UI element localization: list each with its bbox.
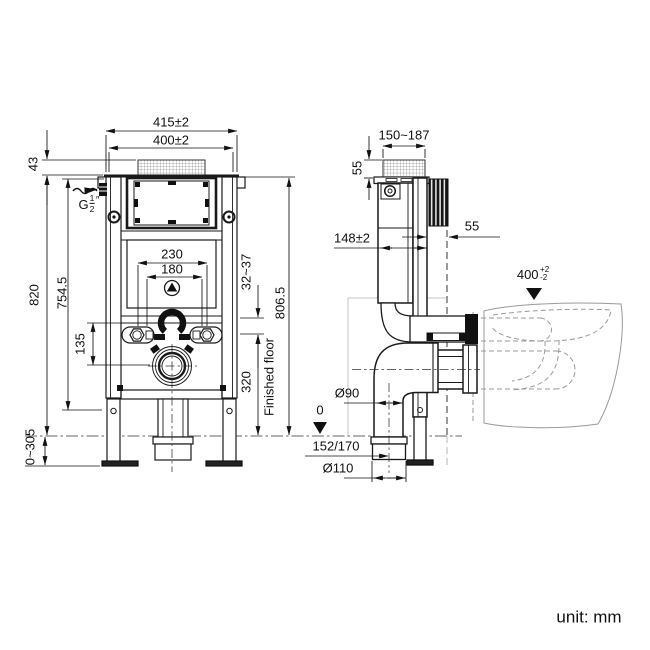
unit-label: unit: mm (556, 609, 621, 626)
dim-fixing-span-inner: 180 (161, 263, 183, 276)
technical-drawing-sheet: 415±2 400±2 43 820 754.5 230 180 135 0~3… (0, 0, 650, 650)
wall-bracket-ribbed (429, 179, 448, 226)
side-foot (407, 460, 433, 465)
seat-height-tolerance: +2 -2 (540, 266, 549, 283)
front-right-rail (222, 177, 237, 398)
seat-height-datum: 400 +2 -2 (517, 267, 549, 283)
dim-fixing-span-outer: 230 (161, 248, 183, 261)
dim-outlet-height: 320 (240, 371, 253, 393)
seat-height-datum-triangle (526, 288, 542, 300)
dim-cistern-depth: 148±2 (334, 232, 370, 245)
fixing-bolt-right (190, 327, 222, 343)
floor-datum-triangle (313, 422, 327, 434)
dim-shaft-height: 55 (351, 161, 364, 175)
inches-mark: ″ (96, 196, 100, 206)
finished-floor-label: Finished floor (263, 338, 276, 416)
drain-elbow (374, 343, 438, 437)
side-view (371, 160, 478, 465)
dim-drain-pipe-diameter: Ø90 (335, 387, 360, 400)
dim-wall-clearance: 55 (465, 220, 479, 233)
fixing-bolt-left (122, 327, 154, 343)
water-inlet-fitting (99, 183, 107, 196)
dim-top-section-height: 43 (27, 157, 40, 171)
front-right-foot (206, 461, 242, 466)
dim-frame-height: 820 (28, 284, 41, 306)
dim-flush-plate-width: 400±2 (153, 134, 189, 147)
front-flush-shaft-hatch (138, 160, 205, 176)
dim-height-above-floor: 806.5 (274, 287, 287, 320)
drawing-linework (0, 0, 650, 650)
floor-datum-zero: 0 (316, 404, 323, 417)
dim-collar-diameter: Ø110 (323, 462, 354, 475)
dim-depth-range: 150~187 (379, 129, 430, 142)
water-inlet-prefix: G (79, 198, 89, 211)
dim-inner-height: 754.5 (56, 277, 69, 310)
front-left-foot (102, 461, 138, 466)
water-inlet-fraction: 1 2 (90, 194, 95, 214)
dim-outlet-offset: 152/170 (313, 440, 360, 453)
front-view (98, 160, 245, 466)
flush-bend-clamp (161, 312, 183, 331)
seat-height-value: 400 (517, 269, 539, 282)
side-leg (414, 417, 426, 461)
dim-bracket-range: 32~37 (240, 254, 253, 291)
side-flush-shaft-hatch (383, 160, 425, 177)
water-inlet-spec: G 1 2 ″ (79, 194, 100, 214)
dim-frame-width-outer: 415±2 (153, 116, 189, 129)
dim-drain-offset: 135 (74, 333, 87, 355)
dim-foot-adjustment: 0~305 (24, 429, 37, 466)
